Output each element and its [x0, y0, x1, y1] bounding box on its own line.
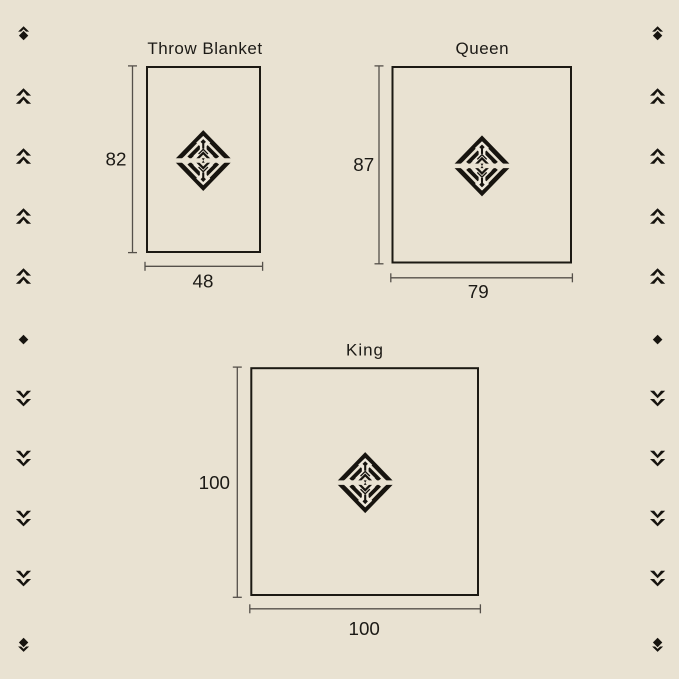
svg-text:King: King	[346, 340, 384, 359]
svg-text:Throw Blanket: Throw Blanket	[147, 39, 262, 58]
svg-text:100: 100	[199, 472, 230, 493]
svg-text:87: 87	[353, 154, 374, 175]
svg-text:82: 82	[106, 149, 127, 170]
svg-text:100: 100	[349, 618, 380, 639]
svg-text:Queen: Queen	[456, 39, 510, 58]
svg-text:48: 48	[193, 271, 214, 292]
svg-text:79: 79	[468, 281, 489, 302]
